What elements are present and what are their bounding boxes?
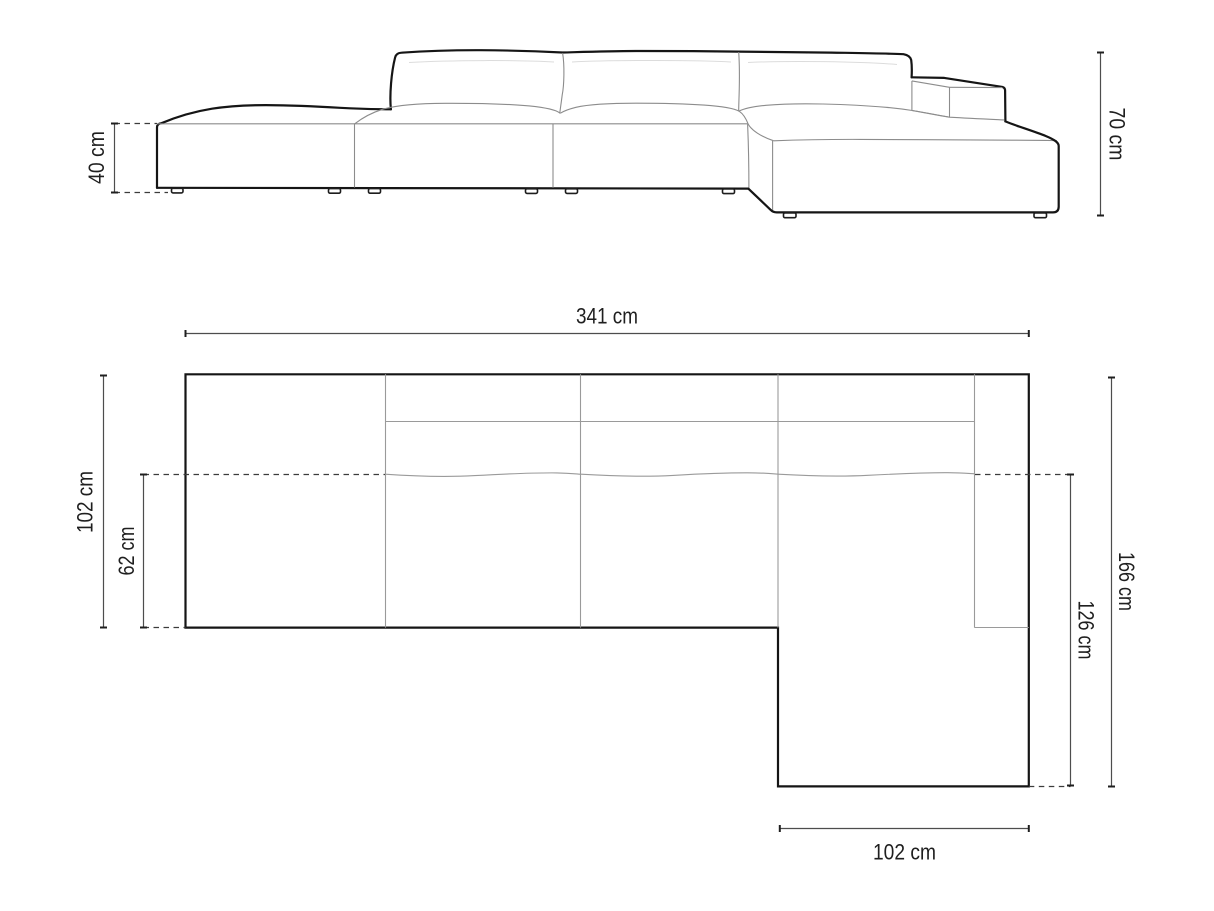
svg-text:40 cm: 40 cm	[84, 131, 109, 184]
svg-text:70 cm: 70 cm	[1105, 108, 1130, 161]
svg-text:102 cm: 102 cm	[873, 839, 936, 864]
svg-text:62 cm: 62 cm	[114, 527, 139, 576]
svg-text:166 cm: 166 cm	[1114, 552, 1139, 611]
svg-text:126 cm: 126 cm	[1074, 601, 1099, 660]
svg-text:341 cm: 341 cm	[576, 304, 638, 329]
svg-text:102 cm: 102 cm	[73, 471, 98, 533]
